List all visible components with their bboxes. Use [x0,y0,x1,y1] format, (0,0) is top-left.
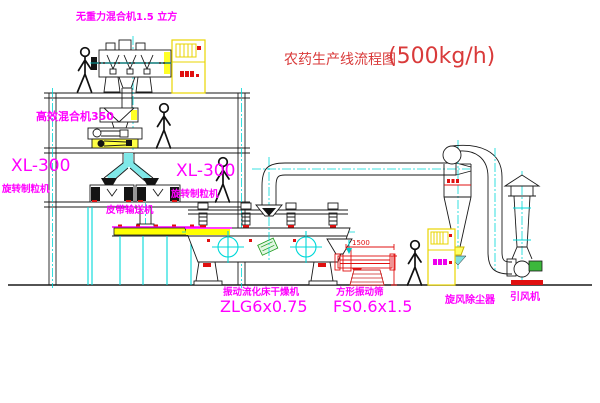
label-gravity-mixer: 无重力混合机1.5 立方 [76,13,177,23]
control-cabinet-dryer [428,229,455,285]
label-draft-fan: 引风机 [510,293,540,303]
label-granulator-left-model: XL-300 [11,158,70,175]
draft-fan [507,259,543,285]
label-granulator-left-name: 旋转制粒机 [2,185,50,195]
worker-floor2 [157,104,171,148]
worker-roof [78,48,92,92]
label-cyclone: 旋风除尘器 [445,296,495,306]
worker-ground [408,241,422,285]
rotary-granulators [90,185,180,202]
label-granulator-right-model: XL-300 [176,163,235,180]
sieve-dimension-text: 1500 [352,240,370,247]
label-belt-conveyor: 皮带输送机 [106,206,154,216]
diagram-title-capacity: (500kg/h) [388,46,495,68]
y-chute [101,153,159,185]
diagram-title: 农药生产线流程图 [284,53,396,67]
label-square-sieve-model: FS0.6x1.5 [333,299,412,315]
pesticide-line-flow-diagram: 无重力混合机1.5 立方 农药生产线流程图 (500kg/h) 高效混合机350… [0,0,600,403]
label-granulator-right-name: 旋转制粒机 [171,190,219,200]
label-high-eff-mixer: 高效混合机350 [36,111,114,122]
label-fluid-bed-dryer-model: ZLG6x0.75 [220,299,308,315]
control-cabinet-top [172,40,205,93]
